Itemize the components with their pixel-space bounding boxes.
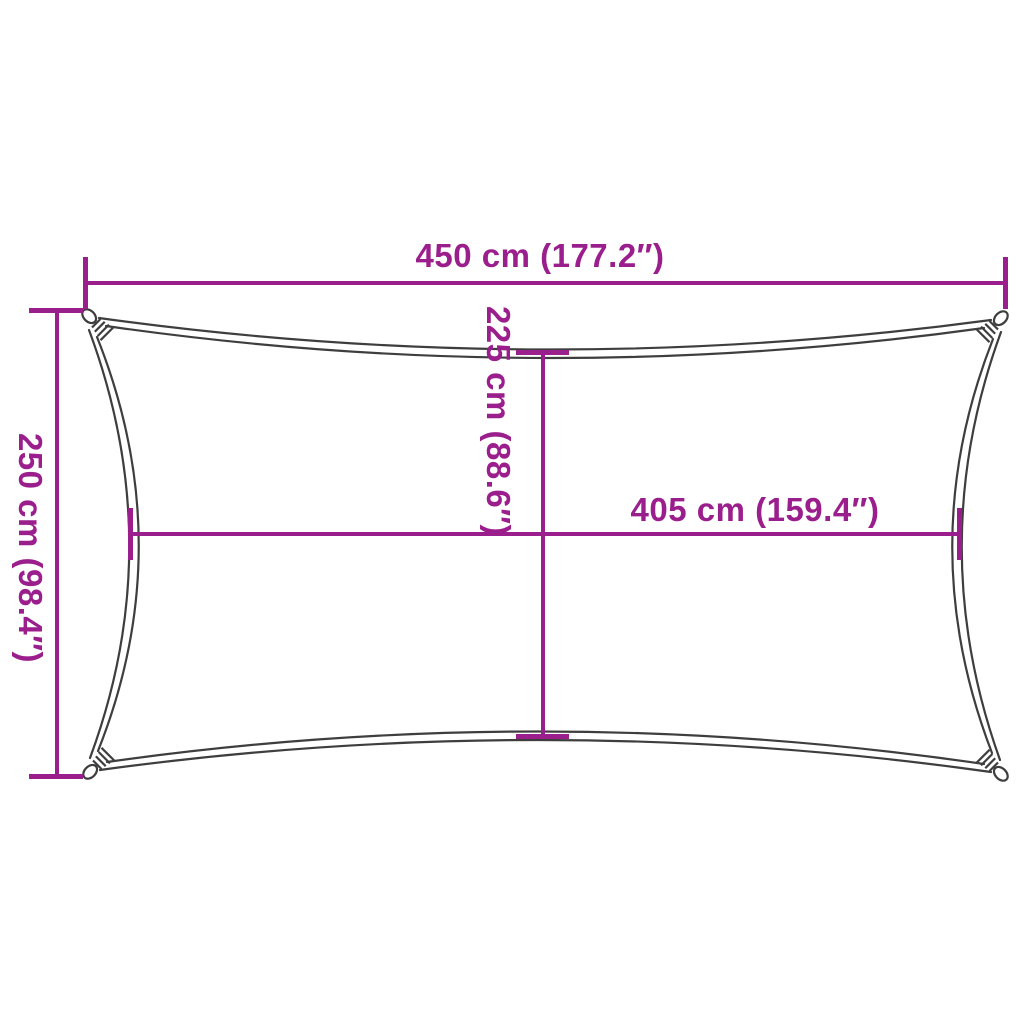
- dimension-label-center-width: 405 cm (159.4″): [631, 491, 880, 529]
- dimension-label-top-width: 450 cm (177.2″): [416, 237, 665, 275]
- dimension-tick-center-width-right: [957, 508, 962, 560]
- sail-edge-left-outer: [89, 330, 129, 758]
- dimension-line-top-width: [85, 281, 1005, 285]
- dimension-diagram: 450 cm (177.2″) 250 cm (98.4″) 225 cm (8…: [0, 0, 1024, 1024]
- dimension-line-center-width: [130, 532, 960, 536]
- sail-edge-top-outer: [99, 318, 991, 350]
- dimension-label-center-height: 225 cm (88.6″): [479, 306, 517, 536]
- dimension-label-left-height: 250 cm (98.4″): [11, 433, 49, 663]
- sail-edges: [89, 318, 1001, 772]
- dimension-tick-left-top: [29, 308, 83, 313]
- dimension-tick-center-height-bottom: [516, 734, 569, 739]
- corner-ring-top-right: [977, 306, 1013, 342]
- corner-ring-bottom-right: [977, 750, 1013, 786]
- dimension-line-left-height: [55, 310, 59, 777]
- dimension-line-center-height: [541, 352, 545, 738]
- dimension-tick-center-height-top: [516, 350, 569, 355]
- dimension-tick-left-bottom: [29, 774, 83, 779]
- sail-edge-bottom-outer: [100, 740, 991, 772]
- sail-edge-right-outer: [962, 332, 1001, 760]
- dimension-tick-center-width-left: [128, 508, 133, 560]
- sail-corner-rings: [77, 304, 1013, 786]
- corner-ring-bottom-left: [78, 748, 114, 784]
- dimension-tick-top-right: [1003, 257, 1008, 309]
- dimension-tick-top-left: [83, 257, 88, 309]
